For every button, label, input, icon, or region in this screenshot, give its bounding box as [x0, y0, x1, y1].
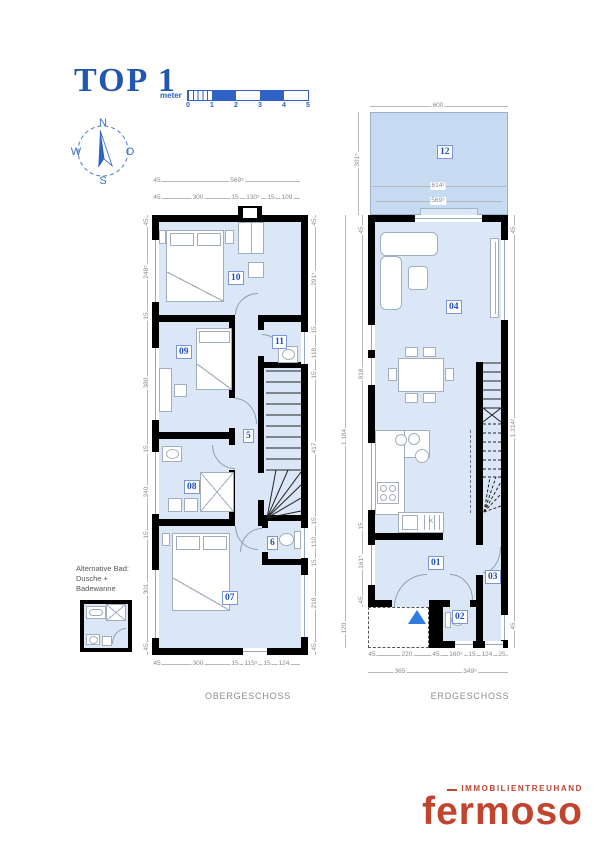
- window: [501, 615, 508, 640]
- wall: [128, 600, 132, 652]
- entrance-arrow: [408, 610, 426, 624]
- scale-tick: 3: [258, 102, 262, 109]
- wall: [159, 315, 235, 322]
- dim-label: 15: [143, 444, 151, 453]
- wall: [503, 641, 508, 648]
- scale-bar: meter 0 1 2 3 4 5: [160, 90, 320, 112]
- wall: [470, 600, 476, 607]
- dim-label: 124: [278, 660, 291, 668]
- armchair: [408, 266, 428, 290]
- chair: [405, 393, 418, 403]
- radiator: [490, 238, 499, 318]
- scale-tick: 5: [306, 102, 310, 109]
- sofa: [380, 232, 438, 256]
- dim-label: 45: [311, 642, 319, 651]
- scale-tick: 0: [186, 102, 190, 109]
- dim-label: 1.184: [341, 428, 349, 446]
- chair: [405, 347, 418, 357]
- dim-label: 124: [481, 651, 494, 659]
- window: [368, 443, 375, 510]
- dim-label: 365: [394, 668, 407, 676]
- staircase: [266, 370, 301, 520]
- scale-tick: 1: [210, 102, 214, 109]
- dim-label: 15: [262, 660, 271, 668]
- window: [368, 545, 375, 585]
- window: [243, 648, 267, 655]
- dim-label: 110: [311, 536, 319, 548]
- window: [455, 641, 473, 648]
- dimension-line: [368, 672, 508, 673]
- scale-tick: 2: [234, 102, 238, 109]
- room-label-11: 11: [272, 335, 287, 349]
- wall: [368, 600, 392, 607]
- wall: [258, 322, 264, 330]
- kitchen-label: K: [429, 518, 433, 525]
- wall: [429, 600, 443, 648]
- wall: [152, 648, 308, 655]
- dim-label: 109: [281, 194, 294, 202]
- sofa: [380, 256, 402, 310]
- desk: [159, 368, 172, 412]
- window: [501, 240, 508, 320]
- dim-label: 45: [311, 217, 319, 226]
- basin: [415, 449, 429, 463]
- floor-plan-sheet: TOP 1 meter 0 1 2 3 4 5 N O S W: [0, 0, 601, 850]
- washbasin: [86, 634, 100, 645]
- room-label-6: 6: [267, 536, 278, 550]
- washing-machine: [168, 498, 182, 512]
- wall: [80, 600, 84, 652]
- wall: [159, 519, 235, 526]
- alt-bath-note-line: Dusche +: [76, 574, 129, 584]
- dim-label: 45: [143, 642, 151, 651]
- chair: [423, 347, 436, 357]
- dimension-line: [362, 215, 363, 607]
- room-label-04: 04: [446, 300, 462, 314]
- dim-label: 291⁵: [311, 271, 319, 287]
- dim-label: 45: [431, 651, 440, 659]
- chimney-flue: [243, 208, 257, 218]
- compass-n: N: [99, 117, 107, 129]
- room-label-02: 02: [452, 610, 468, 624]
- dim-label: 218: [311, 597, 319, 610]
- room-label-08: 08: [184, 480, 200, 494]
- chair: [174, 384, 187, 397]
- compass-s: S: [99, 175, 106, 186]
- room-label-01: 01: [428, 556, 444, 570]
- nightstand: [159, 230, 166, 244]
- shower: [106, 604, 126, 621]
- floor-label-obergeschoss: OBERGESCHOSS: [205, 691, 291, 701]
- dim-label: 15: [467, 651, 476, 659]
- dim-label: 15: [266, 194, 275, 202]
- dim-label: 45: [510, 621, 518, 630]
- dim-label: 15: [143, 530, 151, 539]
- dim-label: 240: [143, 486, 151, 499]
- wall: [159, 432, 235, 439]
- dim-label: 15: [311, 325, 319, 334]
- dim-label: 1.214²: [510, 418, 518, 438]
- window: [485, 641, 503, 648]
- alt-bath-note-line: Badewanne: [76, 584, 129, 594]
- wall: [262, 559, 301, 565]
- dim-label: 569⁵: [430, 197, 446, 205]
- window: [301, 575, 308, 637]
- dim-label: 45: [152, 194, 161, 202]
- wall: [80, 648, 132, 652]
- dim-label: 15: [230, 660, 239, 668]
- dim-label: 45: [358, 225, 366, 234]
- dim-label: 300: [192, 660, 205, 668]
- scale-bar-rule: [187, 90, 309, 101]
- room-label-10: 10: [228, 271, 244, 285]
- dim-label: 45: [152, 177, 161, 185]
- dim-label: 15: [311, 370, 319, 379]
- dryer: [184, 498, 198, 512]
- dim-label: 248⁵: [143, 264, 151, 280]
- window: [152, 240, 159, 302]
- washbasin: [162, 446, 182, 462]
- wall: [368, 215, 375, 325]
- toilet-cistern: [294, 531, 301, 549]
- compass-w: W: [71, 146, 82, 158]
- dimension-line: [152, 198, 300, 199]
- dim-label: 600: [432, 102, 445, 110]
- room-label-03: 03: [485, 570, 501, 584]
- sink-bowl: [408, 433, 420, 445]
- bathtub: [86, 606, 106, 619]
- room-label-5: 5: [243, 429, 254, 443]
- alt-bath-note: Alternative Bad: Dusche + Badewanne: [76, 564, 129, 594]
- wall: [368, 385, 375, 443]
- dim-label: 15: [311, 558, 319, 567]
- dim-label: 918: [358, 368, 366, 381]
- dim-label: 301: [143, 583, 151, 596]
- dim-label: 160⁵: [448, 651, 464, 659]
- shower: [200, 472, 234, 512]
- room-label-09: 09: [176, 345, 192, 359]
- dim-label: 45: [152, 660, 161, 668]
- compass-rose: N O S W: [70, 116, 136, 186]
- nightstand: [162, 533, 170, 546]
- logo-wordmark: fermoso: [413, 793, 583, 831]
- side-table: [248, 262, 264, 278]
- compass-o: O: [126, 146, 135, 158]
- company-logo: IMMOBILIENTREUHAND fermoso: [413, 784, 583, 831]
- stair-void-line: [470, 430, 471, 513]
- dim-label: 220: [401, 651, 414, 659]
- dim-label: 25: [497, 651, 506, 659]
- wall: [476, 575, 483, 648]
- window: [152, 570, 159, 638]
- wall: [258, 315, 301, 322]
- dim-label: 417: [311, 442, 319, 455]
- dim-label: 45: [358, 595, 366, 604]
- dim-label: 15: [230, 194, 239, 202]
- dimension-line: [152, 181, 300, 182]
- room-label-07: 07: [222, 591, 238, 605]
- chair: [445, 368, 454, 381]
- wall: [258, 368, 264, 473]
- wall: [368, 215, 415, 222]
- window: [152, 348, 159, 420]
- dim-label: 15: [358, 521, 366, 530]
- alt-bath-note-line: Alternative Bad:: [76, 564, 129, 574]
- bed: [166, 230, 224, 302]
- wall: [501, 320, 508, 615]
- wall: [375, 533, 443, 540]
- dim-label: 45: [143, 217, 151, 226]
- dim-label: 380: [143, 377, 151, 390]
- dim-label: 15: [311, 516, 319, 525]
- sink-unit: [398, 512, 444, 533]
- dim-label: 45: [510, 225, 518, 234]
- sink-bowl: [395, 434, 407, 446]
- wall: [368, 350, 375, 358]
- wall: [476, 362, 483, 545]
- wall: [443, 600, 450, 607]
- dim-label: 120: [341, 622, 349, 635]
- dim-label: 301⁵: [354, 152, 362, 168]
- toilet: [279, 533, 294, 546]
- dim-label: 349⁵: [462, 668, 478, 676]
- wall: [152, 215, 308, 222]
- dim-label: 569⁵: [229, 177, 245, 185]
- nightstand: [225, 230, 234, 244]
- stove: [377, 482, 399, 504]
- wardrobe: [238, 222, 264, 254]
- dim-label: 614²: [430, 182, 445, 190]
- scale-tick: 4: [282, 102, 286, 109]
- scale-unit-label: meter: [160, 91, 182, 100]
- dim-label: 161⁵: [358, 554, 366, 570]
- chair: [388, 368, 397, 381]
- chair: [423, 393, 436, 403]
- toilet: [102, 636, 112, 646]
- window: [152, 452, 159, 514]
- window: [301, 332, 308, 364]
- bed: [196, 328, 232, 390]
- dim-label: 115⁵: [243, 660, 258, 668]
- window: [301, 528, 308, 558]
- dim-label: 130⁵: [245, 194, 261, 202]
- dim-label: 15: [143, 311, 151, 320]
- staircase: [483, 362, 501, 513]
- dim-label: 118: [311, 347, 319, 359]
- terrace-door: [415, 215, 482, 222]
- dining-table: [398, 358, 444, 392]
- wall: [368, 510, 375, 545]
- floor-label-erdgeschoss: ERDGESCHOSS: [431, 691, 510, 701]
- room-label-12: 12: [437, 145, 453, 159]
- dim-label: 45: [367, 651, 376, 659]
- dim-label: 300: [192, 194, 205, 202]
- wall: [501, 215, 508, 240]
